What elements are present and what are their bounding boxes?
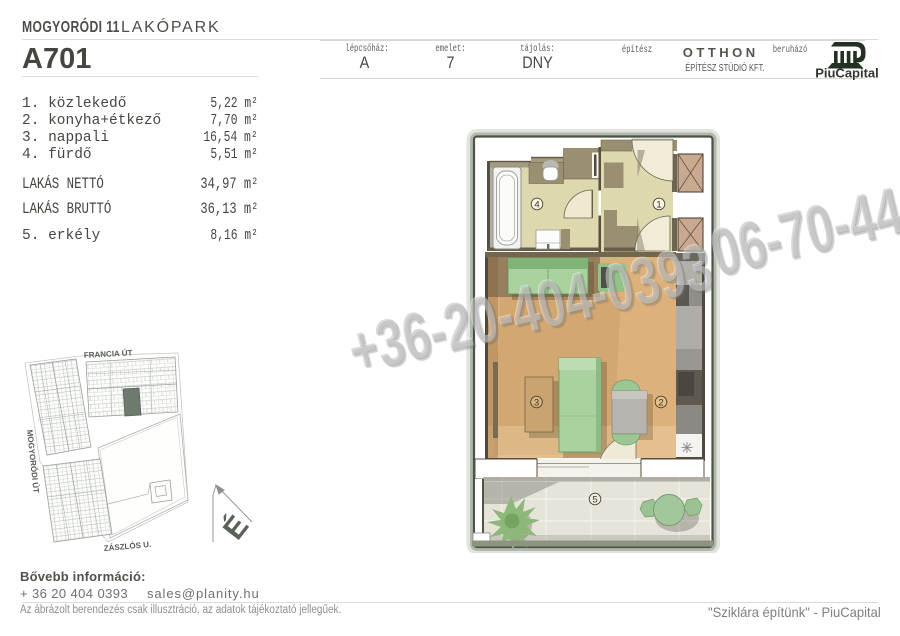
svg-text:FRANCIA ÚT: FRANCIA ÚT: [84, 348, 133, 360]
svg-text:1: 1: [656, 199, 661, 210]
svg-text:3: 3: [534, 397, 539, 408]
svg-text:PiuCapital: PiuCapital: [815, 66, 879, 81]
svg-text:MOGYORÓDI ÚT: MOGYORÓDI ÚT: [25, 429, 41, 493]
svg-text:5: 5: [592, 494, 597, 505]
svg-text:ZÁSZLÓS U.: ZÁSZLÓS U.: [103, 540, 151, 553]
svg-text:2: 2: [658, 397, 663, 408]
svg-text:4: 4: [534, 199, 539, 210]
svg-text:É: É: [216, 509, 255, 546]
